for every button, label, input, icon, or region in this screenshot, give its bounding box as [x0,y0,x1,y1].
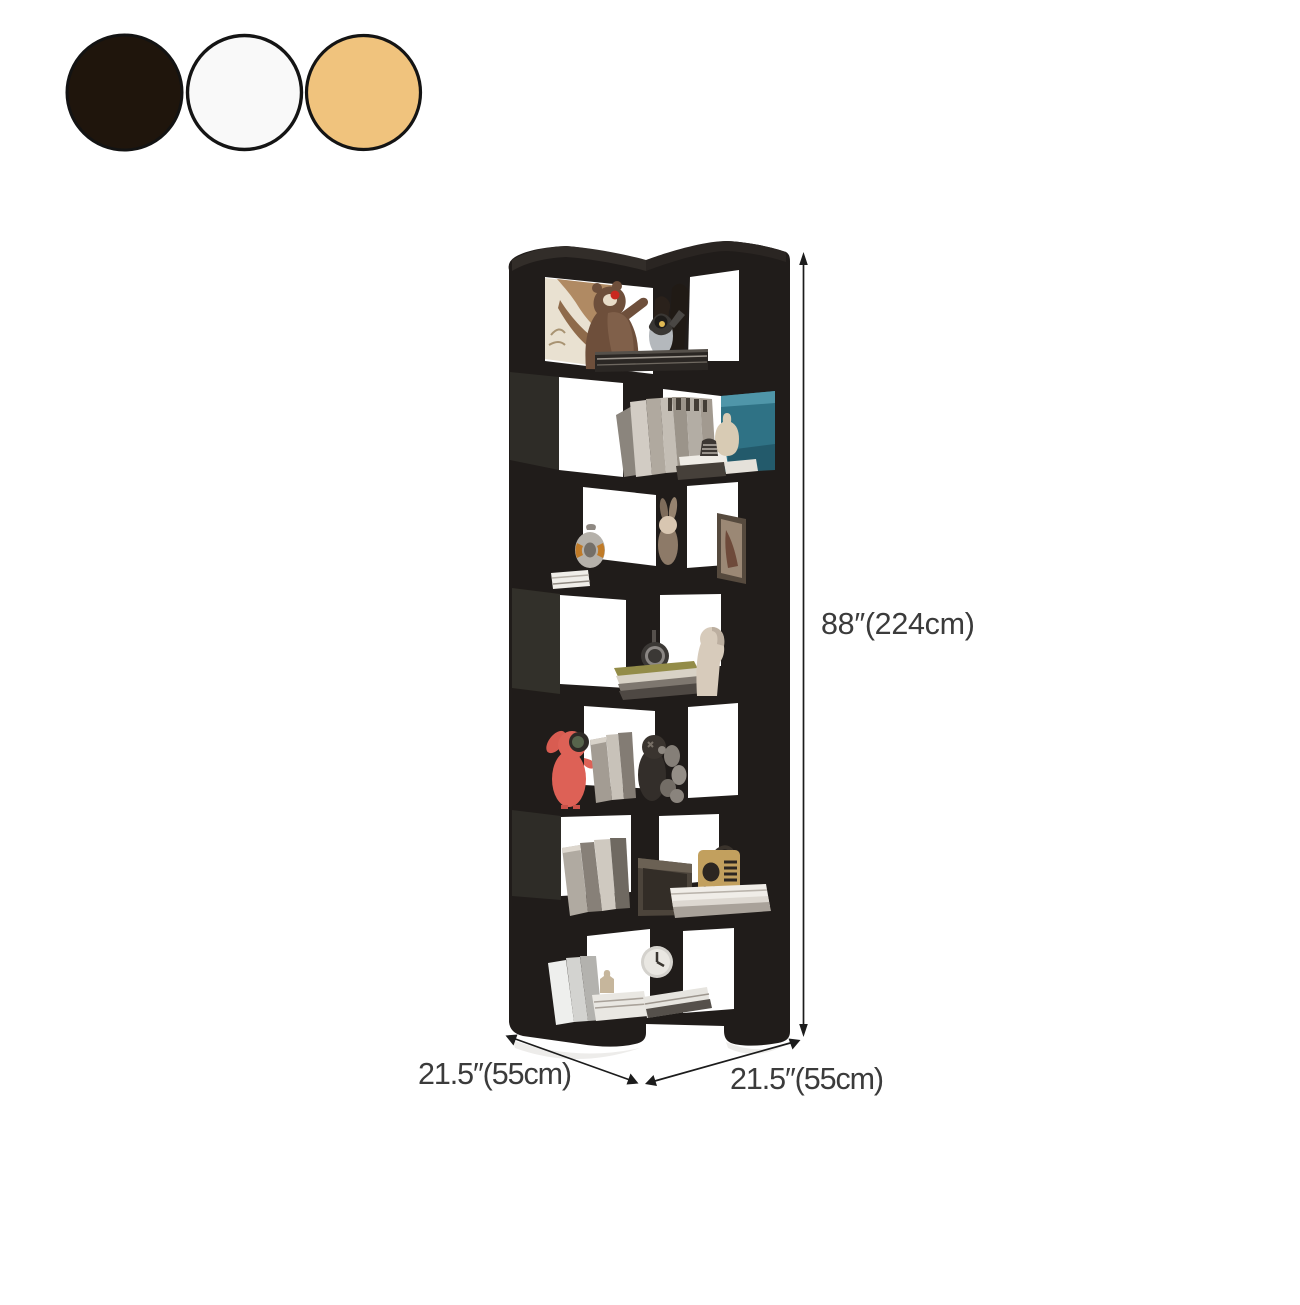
svg-text:88″(224cm): 88″(224cm) [821,607,975,641]
svg-text:21.5″(55cm): 21.5″(55cm) [418,1057,571,1091]
svg-text:21.5″(55cm): 21.5″(55cm) [730,1062,883,1096]
